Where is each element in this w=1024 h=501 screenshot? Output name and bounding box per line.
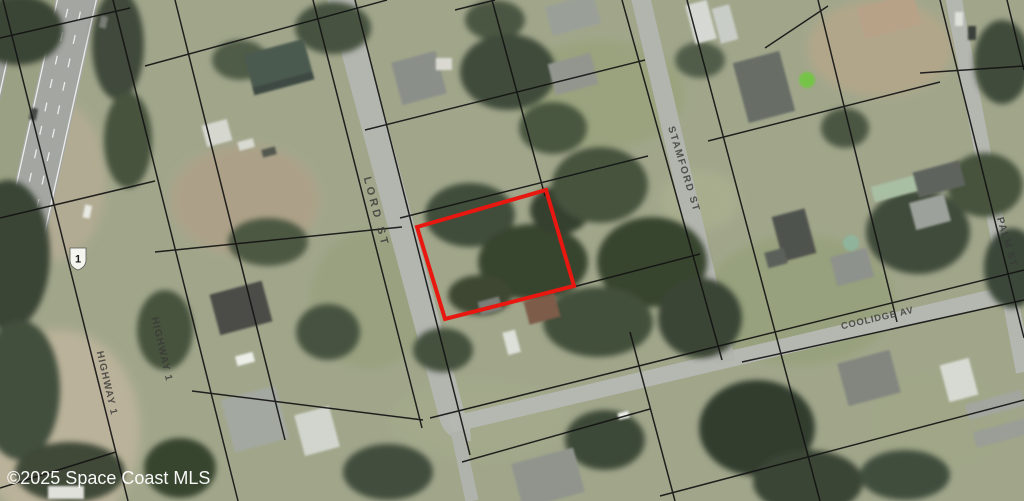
tree-canopy <box>296 304 360 360</box>
vehicle <box>955 12 963 26</box>
tree-canopy <box>860 450 950 500</box>
driveway <box>436 58 452 70</box>
tree-canopy <box>519 102 587 154</box>
us-route-1-shield: 1 <box>70 248 86 270</box>
tree-canopy <box>543 287 653 357</box>
aerial-map-canvas: LORD ST STAMFORD ST HIGHWAY 1 HIGHWAY 1 … <box>0 0 1024 501</box>
tree-canopy <box>658 278 742 358</box>
tree-canopy <box>552 147 648 223</box>
vehicle <box>968 26 976 40</box>
tree-canopy <box>565 410 645 470</box>
route-shield-number: 1 <box>75 254 81 266</box>
aerial-map: LORD ST STAMFORD ST HIGHWAY 1 HIGHWAY 1 … <box>0 0 1024 501</box>
tree-canopy <box>460 34 556 110</box>
tree-canopy <box>104 92 152 188</box>
tree-canopy <box>295 2 371 54</box>
tree-canopy <box>821 108 869 148</box>
copyright-watermark: ©2025 Space Coast MLS <box>7 468 210 488</box>
tree-canopy <box>343 444 433 500</box>
swimming-pool <box>843 235 859 251</box>
swimming-pool <box>799 72 815 88</box>
